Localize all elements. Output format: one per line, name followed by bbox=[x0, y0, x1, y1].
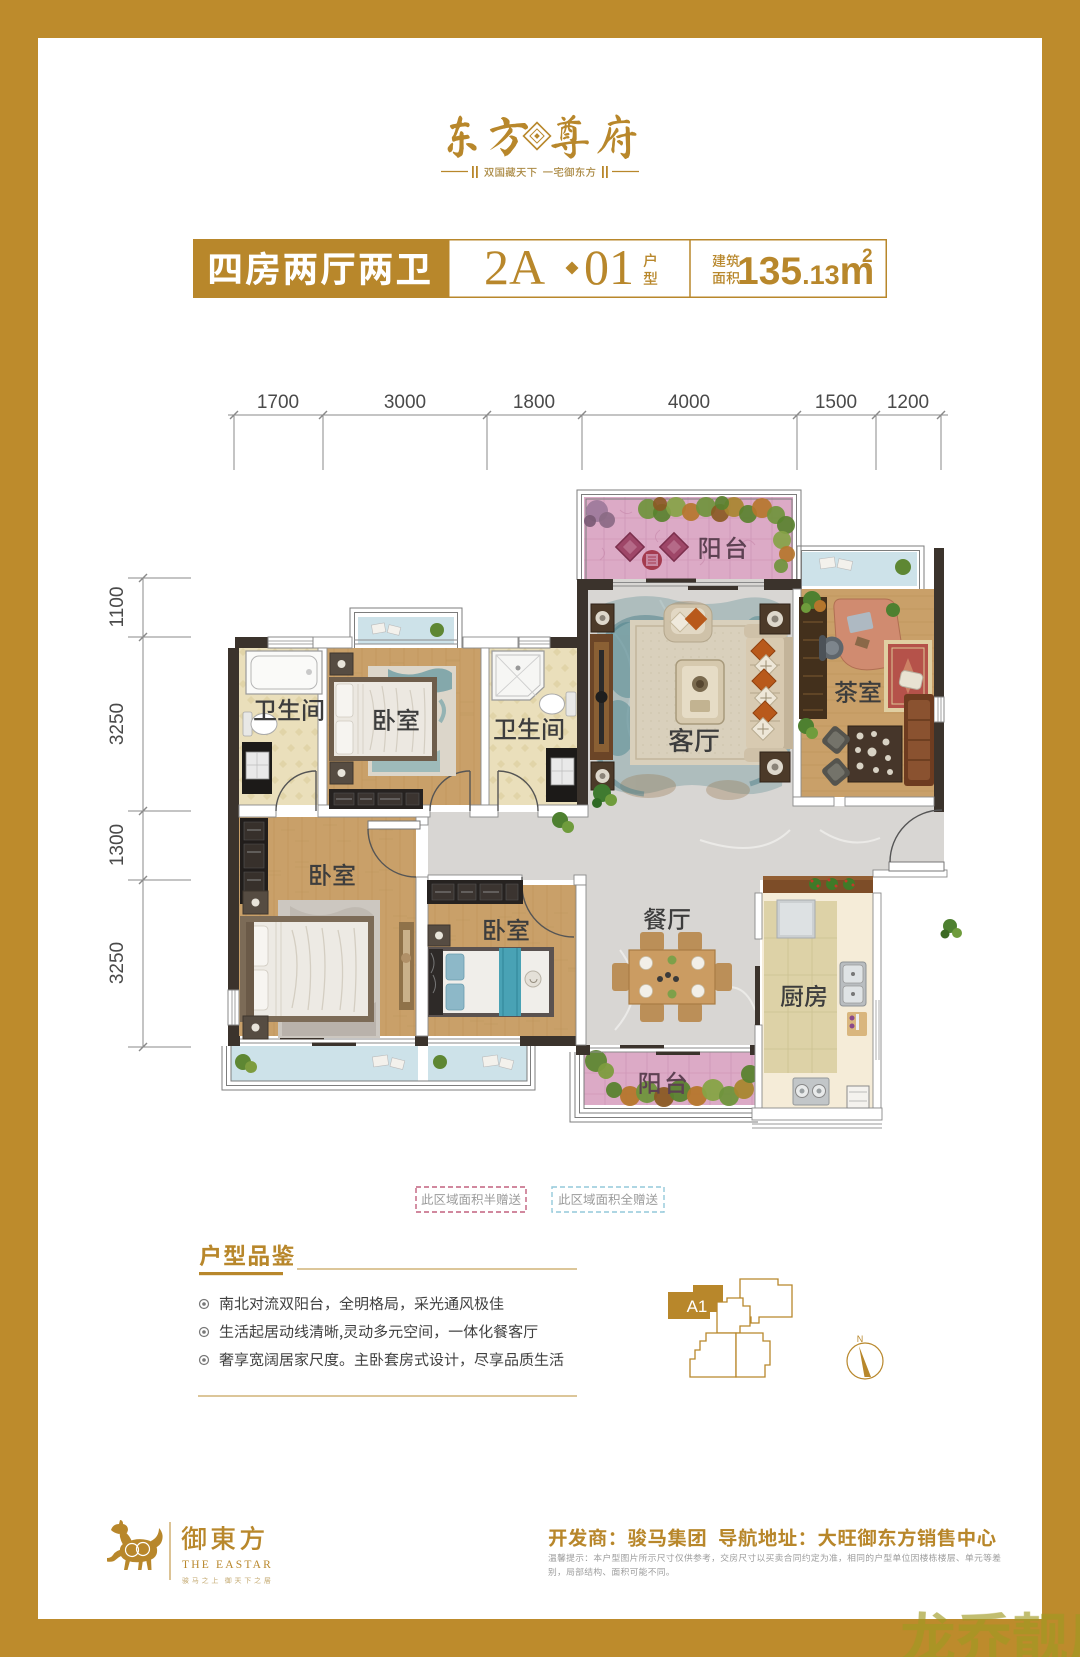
svg-text:3250: 3250 bbox=[107, 942, 128, 984]
svg-text:1800: 1800 bbox=[513, 392, 555, 413]
svg-text:THE EASTAR: THE EASTAR bbox=[182, 1559, 273, 1571]
svg-text:3000: 3000 bbox=[384, 392, 426, 413]
svg-text:1200: 1200 bbox=[887, 392, 929, 413]
svg-text:1100: 1100 bbox=[107, 587, 128, 628]
svg-text:2A: 2A bbox=[484, 239, 545, 295]
svg-text:N: N bbox=[857, 1334, 864, 1344]
svg-text:2: 2 bbox=[862, 246, 873, 267]
svg-text:1700: 1700 bbox=[257, 392, 299, 413]
svg-text:4000: 4000 bbox=[668, 392, 710, 413]
svg-text:A1: A1 bbox=[687, 1297, 708, 1316]
svg-text:1500: 1500 bbox=[815, 392, 857, 413]
svg-text:3250: 3250 bbox=[107, 703, 128, 745]
svg-text:01: 01 bbox=[584, 239, 634, 295]
svg-text:1300: 1300 bbox=[107, 824, 128, 866]
